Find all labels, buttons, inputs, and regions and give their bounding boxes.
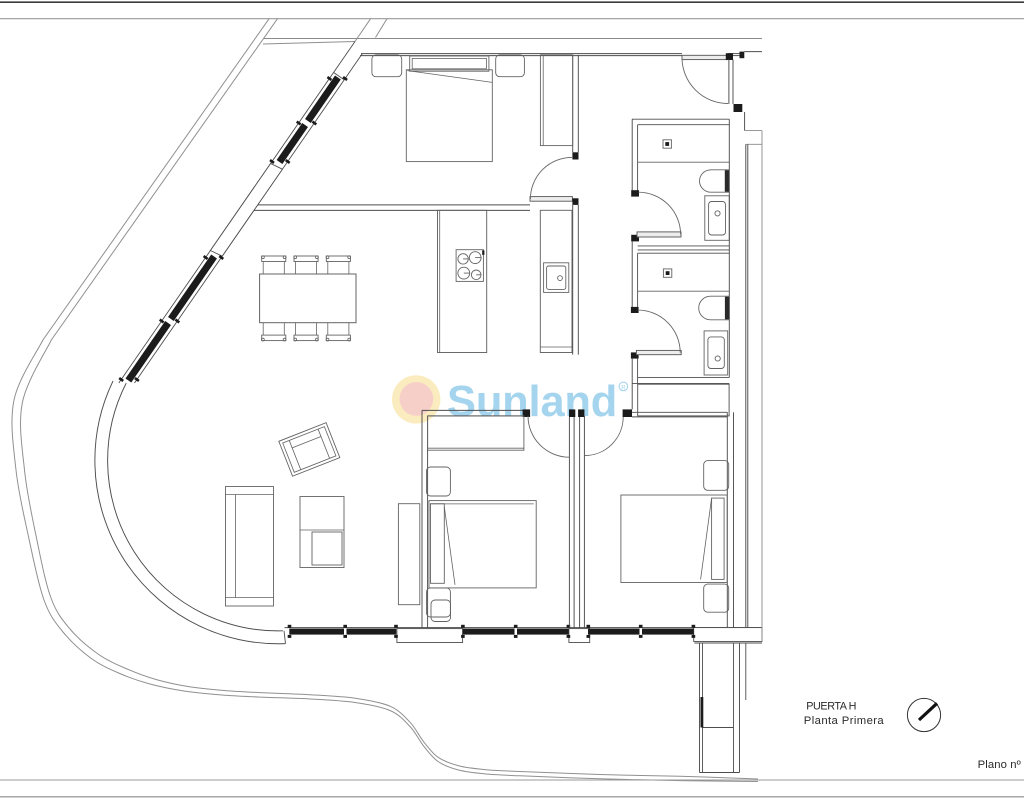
- svg-text:Sunland: Sunland: [447, 378, 617, 426]
- svg-text:Plano nº: Plano nº: [978, 759, 1021, 771]
- svg-text:Planta Primera: Planta Primera: [804, 715, 885, 727]
- svg-text:PUERTA H: PUERTA H: [806, 700, 856, 712]
- svg-text:R: R: [621, 385, 626, 391]
